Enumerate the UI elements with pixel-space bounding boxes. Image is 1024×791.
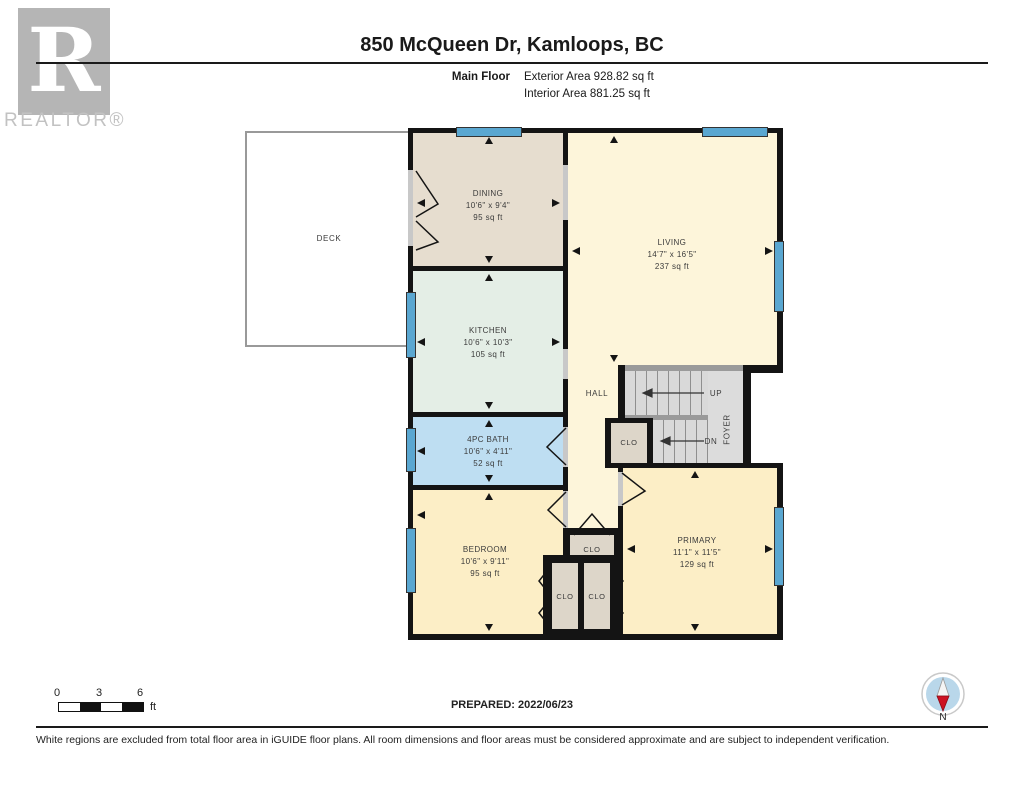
primary-name: PRIMARY xyxy=(627,535,767,547)
kitchen-label: KITCHEN 10'6" x 10'3" 105 sq ft xyxy=(418,325,558,361)
up-label: UP xyxy=(701,389,731,398)
kitchen-dims: 10'6" x 10'3" xyxy=(418,337,558,349)
bath-label: 4PC BATH 10'6" x 4'11" 52 sq ft xyxy=(418,434,558,470)
bedroom-name: BEDROOM xyxy=(415,544,555,556)
bath-dims: 10'6" x 4'11" xyxy=(418,446,558,458)
bedroom-dims: 10'6" x 9'11" xyxy=(415,556,555,568)
kitchen-area: 105 sq ft xyxy=(418,349,558,361)
scale-tick-3: 3 xyxy=(96,687,102,699)
foyer-label: FOYER xyxy=(723,405,732,455)
living-label: LIVING 14'7" x 16'5" 237 sq ft xyxy=(602,237,742,273)
living-dims: 14'7" x 16'5" xyxy=(602,249,742,261)
closet-bedroom-label: CLO xyxy=(550,592,580,601)
closet-stairs-label: CLO xyxy=(614,438,644,447)
primary-label: PRIMARY 11'1" x 11'5" 129 sq ft xyxy=(627,535,767,571)
scale-tick-0: 0 xyxy=(54,687,60,699)
compass-north-label: N xyxy=(918,712,968,723)
living-area: 237 sq ft xyxy=(602,261,742,273)
prepared-date: PREPARED: 2022/06/23 xyxy=(0,699,1024,711)
scale-tick-6: 6 xyxy=(137,687,143,699)
footer-divider xyxy=(36,726,988,728)
floor-plan-page: R REALTOR® 850 McQueen Dr, Kamloops, BC … xyxy=(0,0,1024,791)
kitchen-name: KITCHEN xyxy=(418,325,558,337)
bath-name: 4PC BATH xyxy=(418,434,558,446)
bedroom-label: BEDROOM 10'6" x 9'11" 95 sq ft xyxy=(415,544,555,580)
bath-area: 52 sq ft xyxy=(418,458,558,470)
primary-dims: 11'1" x 11'5" xyxy=(627,547,767,559)
dn-label: DN xyxy=(696,437,726,446)
closet-primary-label: CLO xyxy=(582,592,612,601)
primary-door xyxy=(622,473,645,505)
bedroom-area: 95 sq ft xyxy=(415,568,555,580)
closet-hall-label: CLO xyxy=(577,545,607,554)
hall-label: HALL xyxy=(567,389,627,398)
stair-direction-arrows xyxy=(643,389,704,445)
dining-label: DINING 10'6" x 9'4" 95 sq ft xyxy=(418,188,558,224)
living-name: LIVING xyxy=(602,237,742,249)
dining-dims: 10'6" x 9'4" xyxy=(418,200,558,212)
bedroom-door xyxy=(548,492,566,527)
doors-and-arrows-overlay xyxy=(0,0,1024,791)
disclaimer-text: White regions are excluded from total fl… xyxy=(36,734,996,746)
primary-area: 129 sq ft xyxy=(627,559,767,571)
dining-name: DINING xyxy=(418,188,558,200)
dining-area: 95 sq ft xyxy=(418,212,558,224)
